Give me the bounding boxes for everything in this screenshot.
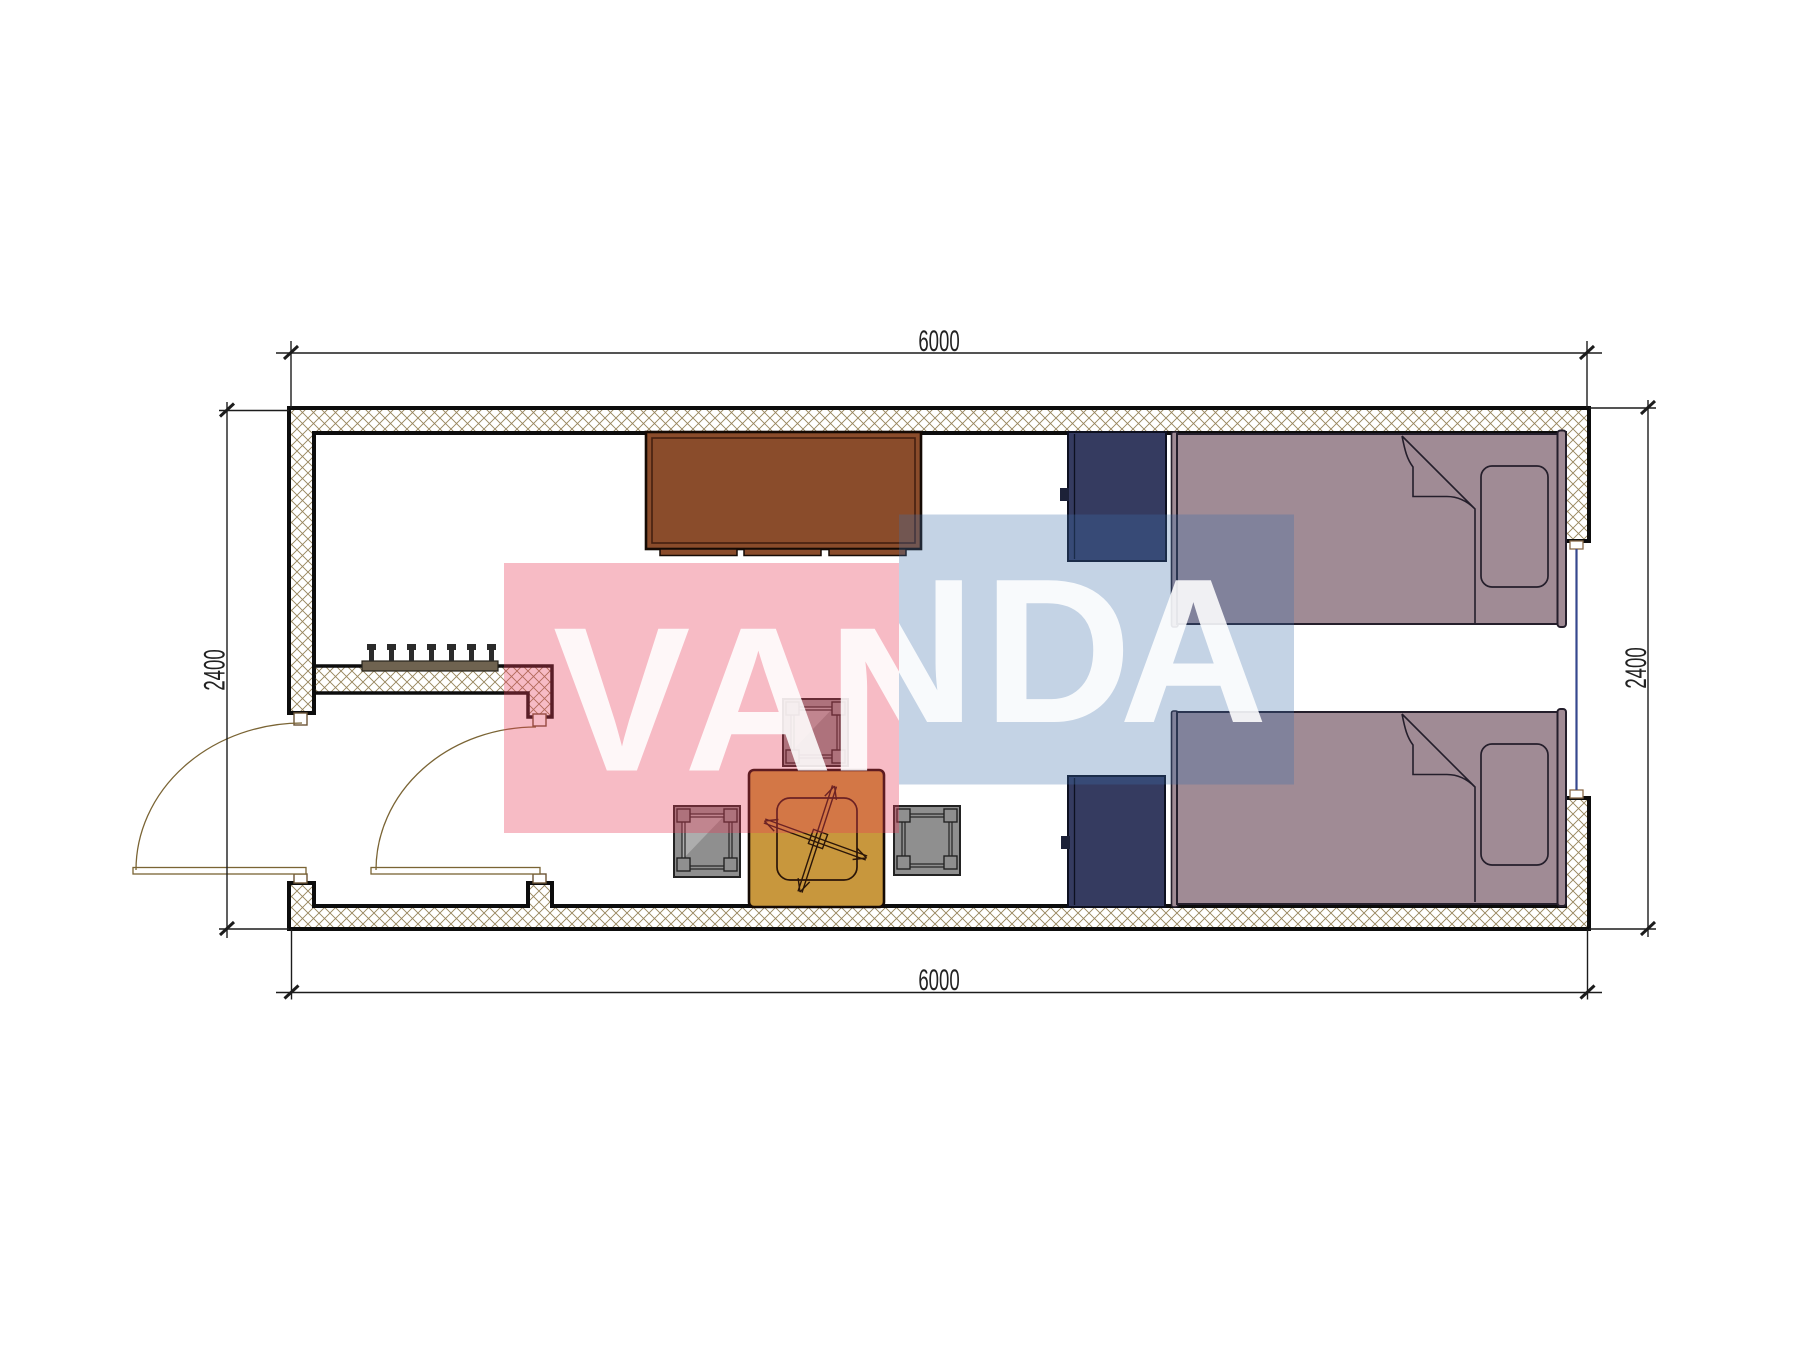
- svg-text:2400: 2400: [1620, 647, 1654, 688]
- svg-text:2400: 2400: [198, 649, 232, 690]
- svg-text:6000: 6000: [918, 964, 959, 998]
- svg-text:6000: 6000: [918, 325, 959, 359]
